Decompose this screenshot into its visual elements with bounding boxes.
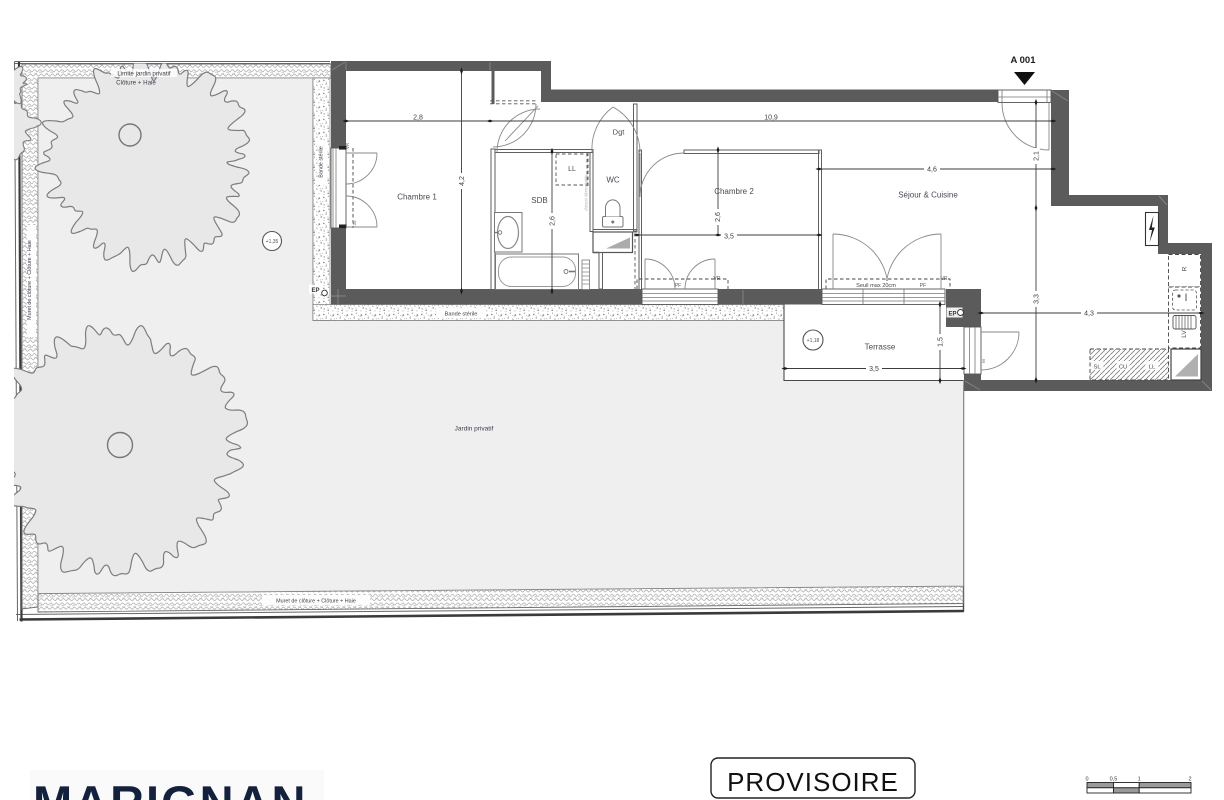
- svg-text:Chambre 2: Chambre 2: [714, 187, 754, 196]
- svg-text:PF: PF: [920, 283, 926, 289]
- svg-text:WC: WC: [606, 175, 620, 184]
- svg-text:CU: CU: [1119, 365, 1127, 371]
- svg-text:10,9: 10,9: [764, 115, 778, 122]
- svg-text:0: 0: [1085, 777, 1088, 783]
- svg-text:PROVISOIRE: PROVISOIRE: [727, 767, 899, 797]
- svg-text:Terrasse: Terrasse: [865, 343, 896, 352]
- svg-text:2,6: 2,6: [715, 212, 722, 222]
- svg-text:PF: PF: [675, 283, 681, 289]
- svg-text:VR: VR: [714, 276, 721, 282]
- svg-text:VR: VR: [941, 276, 948, 282]
- svg-text:Muret de clôture + Clôture + H: Muret de clôture + Clôture + Haie: [27, 240, 33, 320]
- svg-text:Bande stérile: Bande stérile: [319, 146, 325, 177]
- svg-text:2,1: 2,1: [1034, 151, 1041, 161]
- svg-text:SL: SL: [1093, 365, 1101, 371]
- svg-text:LL: LL: [1149, 365, 1156, 371]
- svg-text:Séjour & Cuisine: Séjour & Cuisine: [898, 190, 958, 199]
- svg-text:3,5: 3,5: [724, 234, 734, 241]
- svg-text:VR: VR: [345, 142, 350, 149]
- svg-text:+1,35: +1,35: [266, 239, 279, 245]
- svg-text:MARIGNAN: MARIGNAN: [33, 776, 307, 800]
- svg-text:4,2: 4,2: [459, 176, 466, 186]
- svg-text:M: M: [981, 359, 986, 363]
- svg-text:Clôture + Haie: Clôture + Haie: [116, 80, 156, 87]
- svg-text:A 001: A 001: [1011, 55, 1037, 66]
- svg-text:EP: EP: [948, 312, 956, 318]
- svg-text:LL: LL: [568, 166, 576, 173]
- svg-text:Muret de clôture + Clôture + H: Muret de clôture + Clôture + Haie: [276, 599, 356, 605]
- svg-text:Bande stérile: Bande stérile: [445, 312, 478, 318]
- svg-text:2,8: 2,8: [413, 115, 423, 122]
- svg-text:cloison démontable: cloison démontable: [584, 174, 589, 211]
- svg-text:4,3: 4,3: [1084, 311, 1094, 318]
- svg-text:3,3: 3,3: [1034, 294, 1041, 304]
- svg-text:+1,18: +1,18: [807, 338, 820, 344]
- svg-text:Jardin privatif: Jardin privatif: [455, 426, 494, 433]
- svg-text:0,5: 0,5: [1110, 777, 1118, 783]
- svg-text:LV: LV: [1181, 330, 1188, 338]
- svg-text:1,5: 1,5: [938, 337, 945, 347]
- svg-text:35: 35: [352, 220, 357, 226]
- svg-text:Dgt: Dgt: [613, 128, 626, 137]
- svg-text:3,5: 3,5: [869, 366, 879, 373]
- svg-text:Seuil max 20cm: Seuil max 20cm: [856, 283, 896, 289]
- svg-text:SDB: SDB: [531, 196, 547, 205]
- svg-text:EP: EP: [311, 288, 319, 294]
- svg-text:R: R: [1182, 266, 1189, 271]
- svg-text:1: 1: [1138, 777, 1141, 783]
- svg-text:2,6: 2,6: [550, 216, 557, 226]
- svg-text:4,6: 4,6: [927, 167, 937, 174]
- svg-text:2: 2: [1188, 777, 1191, 783]
- svg-text:Chambre 1: Chambre 1: [397, 192, 437, 201]
- svg-text:Limite jardin privatif: Limite jardin privatif: [117, 71, 171, 78]
